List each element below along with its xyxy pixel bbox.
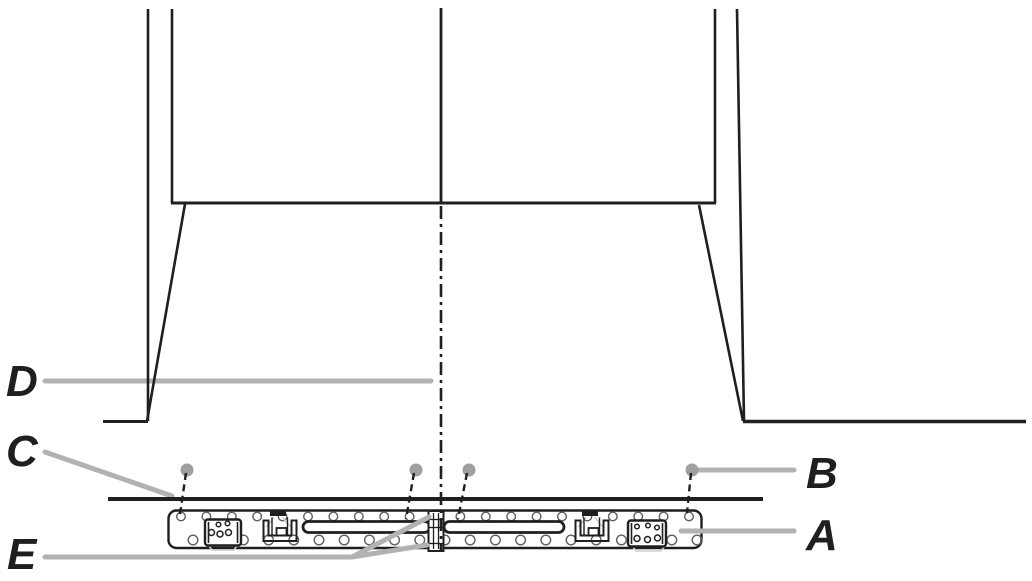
screw-dot bbox=[463, 464, 476, 477]
bracket-top-bar bbox=[582, 512, 598, 517]
label-b: B bbox=[806, 449, 838, 498]
installation-diagram: D C E B A bbox=[0, 0, 1032, 581]
diagram-canvas: D C E B A bbox=[0, 0, 1032, 581]
leader-lines-under bbox=[45, 381, 431, 496]
right-outer-panel-line bbox=[737, 9, 744, 421]
dashed-pointer bbox=[687, 473, 691, 513]
right-fixing-plate bbox=[628, 521, 666, 552]
leader-line-c bbox=[45, 452, 172, 496]
appliance-outline bbox=[103, 8, 1026, 422]
dashed-pointer bbox=[180, 473, 186, 514]
screw-dot bbox=[410, 464, 423, 477]
screw-dot bbox=[181, 464, 194, 477]
label-a: A bbox=[805, 511, 838, 560]
bracket-top-bar bbox=[270, 512, 286, 517]
rail-slot-right bbox=[444, 522, 564, 533]
mounting-rail bbox=[169, 511, 702, 552]
left-diagonal-line bbox=[147, 204, 185, 421]
label-e: E bbox=[7, 530, 38, 579]
label-d: D bbox=[6, 357, 38, 406]
right-diagonal-line bbox=[699, 205, 743, 421]
label-c: C bbox=[6, 427, 39, 476]
screw-position-dots bbox=[181, 464, 699, 477]
left-fixing-plate bbox=[205, 520, 241, 551]
